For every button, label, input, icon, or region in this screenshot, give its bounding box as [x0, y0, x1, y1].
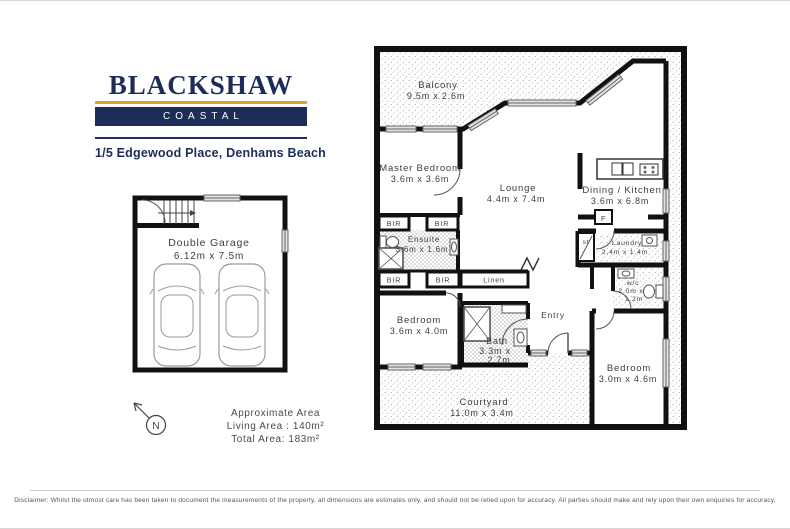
room-label-ensuite: Ensuite	[408, 235, 440, 244]
room-label-dining-kitchen: Dining / Kitchen	[582, 185, 661, 196]
room-label-bedroom-mid: Bedroom	[397, 315, 441, 326]
bir-label-3: BIR	[387, 276, 401, 285]
room-dims-lounge: 4.4m x 7.4m	[487, 194, 545, 204]
room-dims-wc-1: 2.0m x	[618, 288, 643, 295]
room-label-balcony: Balcony	[418, 80, 457, 91]
room-dims-dining-kitchen: 3.6m x 6.8m	[591, 196, 649, 206]
room-dims-bedroom-mid: 3.6m x 4.0m	[390, 326, 448, 336]
room-dims-laundry: 2.4m x 1.4m	[602, 249, 648, 256]
basin-icon	[514, 329, 527, 346]
room-dims-garage: 6.12m x 7.5m	[174, 251, 244, 262]
room-label-courtyard: Courtyard	[460, 397, 509, 408]
bir-label-1: BIR	[387, 219, 401, 228]
compass-north-label: N	[152, 421, 159, 432]
floorplan-drawing: N Balcony 9.5m x 2.6m Master Bedroom 3.6…	[0, 1, 790, 528]
disclaimer-text: Disclaimer: Whilst the utmost care has b…	[0, 497, 790, 504]
linen-label: Linen	[483, 276, 505, 285]
room-label-wc: w/c	[626, 280, 640, 287]
compass-icon: N	[134, 403, 166, 435]
room-dims-ensuite: 3.6m x 1.6m	[396, 245, 449, 254]
room-label-bath: Bath	[486, 336, 508, 346]
bath-niche	[502, 305, 526, 313]
room-label-entry: Entry	[541, 310, 565, 320]
wc-sink-icon	[618, 269, 634, 278]
room-dims-courtyard: 11.0m x 3.4m	[450, 408, 513, 418]
washer-icon	[642, 235, 657, 246]
toilet-icon	[644, 285, 664, 298]
wall-break-symbol	[521, 258, 539, 270]
room-dims-master-bedroom: 3.6m x 3.6m	[391, 174, 449, 184]
room-label-bedroom-right: Bedroom	[607, 363, 651, 374]
fridge-label: F	[601, 216, 606, 223]
basin-icon	[450, 239, 458, 255]
bir-label-2: BIR	[435, 219, 449, 228]
bir-label-4: BIR	[436, 276, 450, 285]
room-label-garage: Double Garage	[168, 237, 250, 249]
room-dims-bath-2: 2.7m	[487, 355, 510, 365]
room-label-master-bedroom: Master Bedroom	[379, 163, 460, 174]
room-label-laundry: Laundry	[612, 240, 642, 247]
garage-walls	[135, 198, 285, 370]
room-label-lounge: Lounge	[500, 183, 537, 194]
room-dims-wc-2: 1.2m	[625, 296, 643, 303]
storage-label: st	[583, 239, 590, 246]
room-dims-bedroom-right: 3.0m x 4.6m	[599, 374, 657, 384]
floorplan-page: BLACKSHAW COASTAL 1/5 Edgewood Place, De…	[0, 0, 790, 529]
footer-divider	[30, 490, 760, 491]
kitchen-bench	[597, 159, 663, 179]
room-dims-balcony: 9.5m x 2.6m	[407, 91, 465, 101]
